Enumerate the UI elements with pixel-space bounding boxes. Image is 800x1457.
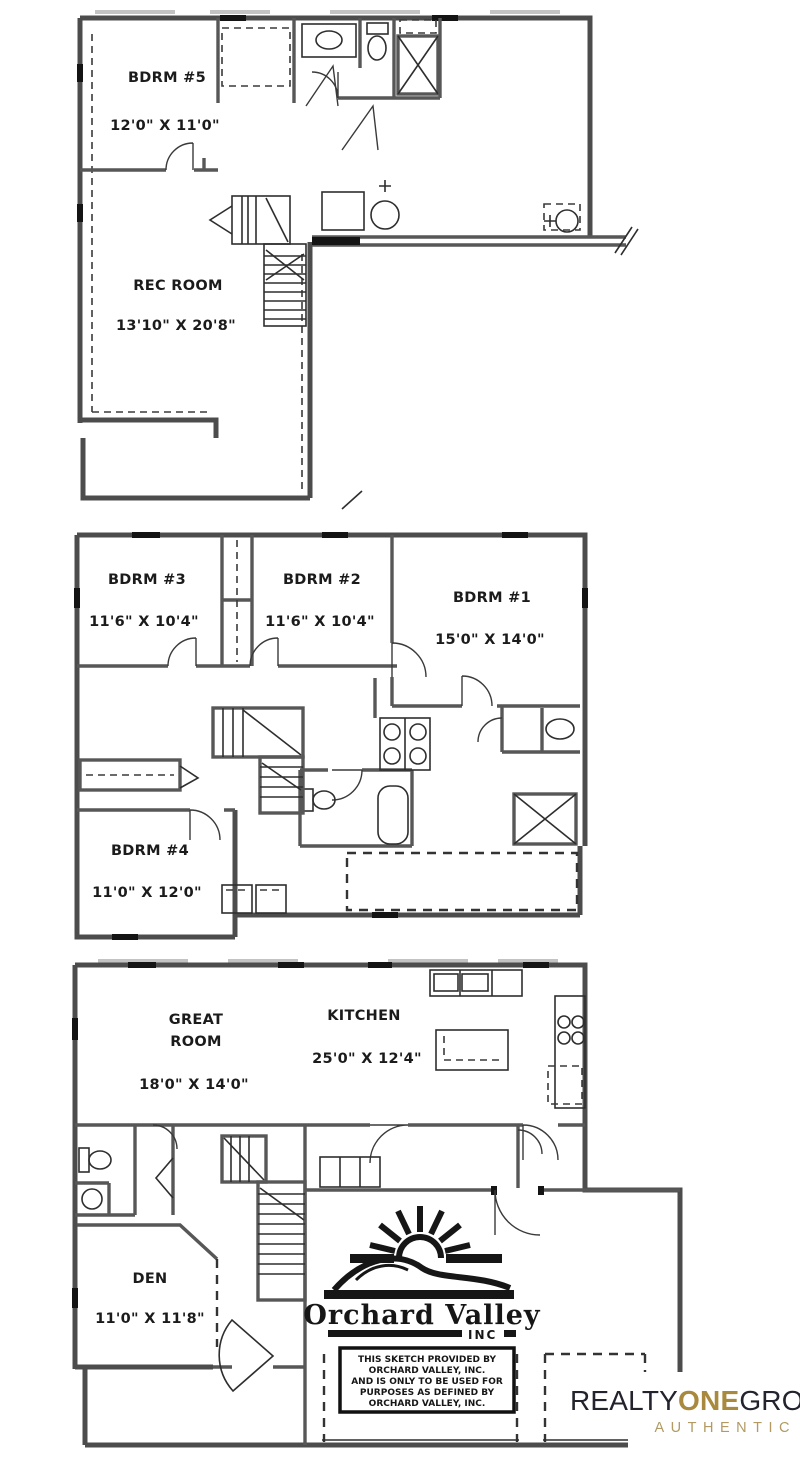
kitchen-dims: 25'0" X 12'4" — [312, 1051, 422, 1067]
rec-room-label: REC ROOM — [133, 278, 222, 294]
toilet-icon — [79, 1148, 111, 1172]
den-dims: 11'0" X 11'8" — [95, 1311, 205, 1327]
brokerage-word-realty: REALTY — [570, 1385, 678, 1416]
disclaimer-line-3: AND IS ONLY TO BE USED FOR — [351, 1377, 503, 1387]
bdrm1-label: BDRM #1 — [453, 590, 531, 606]
great-room-label-1: GREAT — [169, 1012, 223, 1028]
refrigerator-icon — [548, 1066, 582, 1104]
stairs — [213, 708, 303, 813]
bench-lockers — [320, 1157, 380, 1187]
kitchen-fixtures — [430, 970, 585, 1108]
den-label: DEN — [133, 1271, 168, 1287]
mudroom — [320, 1157, 380, 1187]
stairs — [222, 1136, 305, 1300]
sump-icon — [556, 210, 578, 232]
toilet-icon — [367, 23, 388, 60]
sink-icon — [546, 719, 574, 739]
water-heater-icon — [371, 201, 399, 229]
hall-bath — [300, 678, 430, 846]
kitchen-label: KITCHEN — [327, 1008, 400, 1024]
rec-room-dims: 13'10" X 20'8" — [116, 318, 236, 334]
stairs — [210, 196, 306, 326]
brokerage-wordmark: REALTYONEGROUP — [570, 1385, 798, 1417]
sunrise-icon — [370, 1206, 470, 1251]
brokerage-subtitle: AUTHENTIC — [570, 1420, 798, 1436]
bdrm3-dims: 11'6" X 10'4" — [89, 614, 199, 630]
builder-name: Orchard Valley — [303, 1300, 540, 1331]
brokerage-logo: REALTYONEGROUP AUTHENTIC — [570, 1385, 798, 1436]
bdrm2-label: BDRM #2 — [283, 572, 361, 588]
hall-door-swings — [306, 66, 378, 150]
bathroom-fixtures — [302, 18, 440, 98]
range-burners-icon — [558, 1016, 584, 1044]
hall-closet — [80, 760, 198, 790]
builder-logo: Orchard Valley INC — [303, 1206, 540, 1342]
bdrm3-label: BDRM #3 — [108, 572, 186, 588]
builder-suffix: INC — [468, 1328, 497, 1342]
sink-icon — [82, 1189, 102, 1209]
bdrm4-label: BDRM #4 — [111, 843, 189, 859]
brokerage-word-one: ONE — [678, 1385, 739, 1416]
vanity-sink-icon — [302, 24, 356, 57]
floor-plan-sheet: { "rooms": { "bdrm5": {"label": "BDRM #5… — [0, 0, 800, 1457]
bdrm4-walls — [77, 810, 235, 840]
double-vanity-icon — [380, 718, 430, 770]
toilet-icon — [303, 789, 335, 811]
linen-closets — [222, 885, 286, 913]
great-room-label-2: ROOM — [170, 1034, 221, 1050]
shower-icon — [398, 36, 438, 94]
second-floor-plan: BDRM #3 11'6" X 10'4" BDRM #2 11'6" X 10… — [72, 528, 592, 948]
disclaimer-line-5: ORCHARD VALLEY, INC. — [369, 1399, 486, 1409]
main-floor-plan: Orchard Valley INC THIS SKETCH PROVIDED … — [68, 958, 693, 1453]
siding-marks — [98, 959, 558, 963]
furnace-icon — [322, 192, 364, 230]
front-door-swing — [219, 1320, 273, 1391]
brokerage-word-group: GROUP — [739, 1385, 800, 1416]
kitchen-island — [436, 1030, 508, 1070]
master-closet — [514, 794, 576, 844]
siding-marks — [95, 10, 560, 14]
hall-closet — [153, 1125, 177, 1215]
master-bath — [478, 706, 580, 752]
bathtub-icon — [378, 786, 408, 844]
bdrm5-dims: 12'0" X 11'0" — [110, 118, 220, 134]
bdrm4-dims: 11'0" X 12'0" — [92, 885, 202, 901]
basement-floor-plan: BDRM #5 12'0" X 11'0" REC ROOM 13'10" X … — [70, 8, 640, 513]
great-room-dims: 18'0" X 14'0" — [139, 1077, 249, 1093]
disclaimer-line-2: ORCHARD VALLEY, INC. — [369, 1366, 486, 1376]
exterior-walls — [77, 15, 638, 509]
unfinished-area — [347, 853, 577, 910]
bdrm2-dims: 11'6" X 10'4" — [265, 614, 375, 630]
bdrm5-label: BDRM #5 — [128, 70, 206, 86]
bedroom5-walls — [80, 18, 294, 170]
utility-fixtures — [322, 180, 580, 232]
bdrm1-dims: 15'0" X 14'0" — [435, 632, 545, 648]
kitchen-sink-icon — [434, 974, 458, 991]
disclaimer-box: THIS SKETCH PROVIDED BY ORCHARD VALLEY, … — [340, 1348, 514, 1412]
powder-room — [75, 1125, 135, 1215]
disclaimer-line-4: PURPOSES AS DEFINED BY — [360, 1388, 495, 1398]
disclaimer-line-1: THIS SKETCH PROVIDED BY — [358, 1355, 496, 1365]
